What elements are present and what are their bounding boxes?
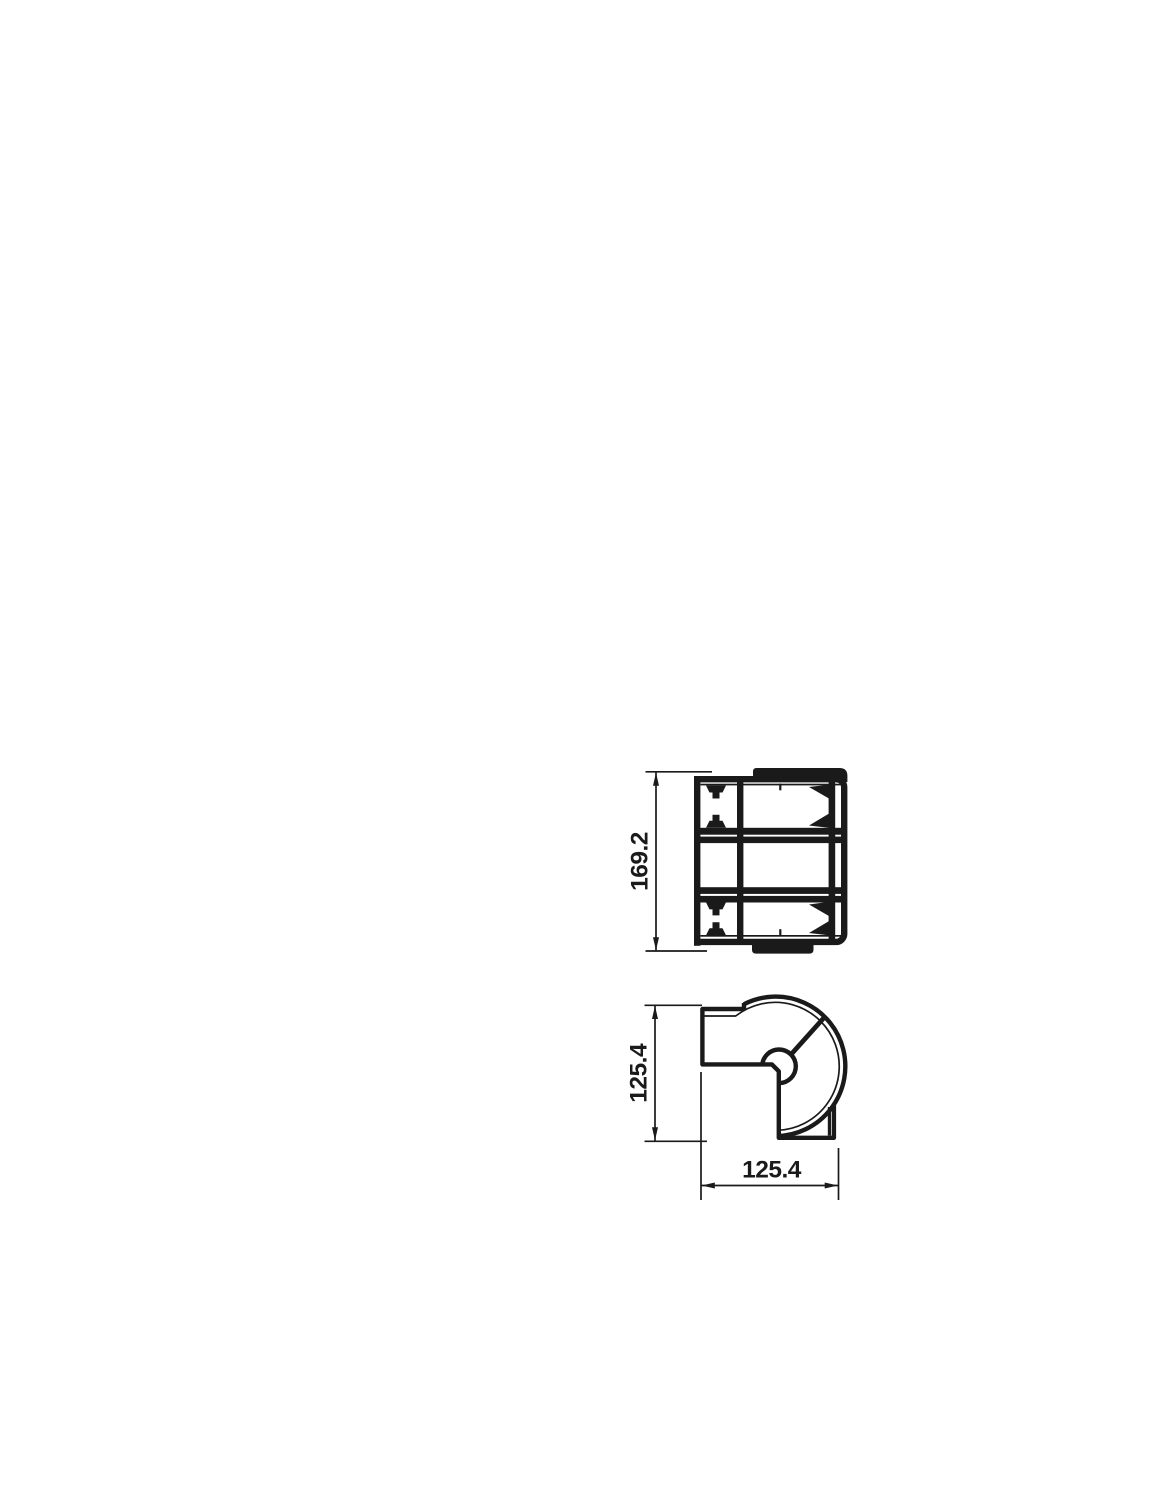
technical-drawing: 169.2 125.4	[0, 0, 1159, 1500]
dimension-label-corner-width: 125.4	[742, 1156, 802, 1183]
drawing-sheet: 169.2 125.4	[0, 0, 1159, 1500]
profile-clip-lug	[706, 815, 726, 828]
profile-rail-band	[694, 828, 844, 835]
profile-clip-lug	[706, 786, 726, 799]
profile-top-centre-tick	[779, 784, 781, 791]
profile-front-view	[694, 768, 847, 954]
corner-inner-mask	[699, 1066, 779, 1139]
arrowhead-up-icon	[652, 1006, 658, 1019]
profile-snap-wedge	[809, 901, 835, 920]
arrowhead-down-icon	[653, 937, 659, 950]
profile-snap-wedge	[809, 918, 835, 937]
profile-bottom-centre-tick	[779, 929, 781, 936]
profile-left-wall	[694, 776, 700, 946]
profile-divider-wall	[737, 777, 743, 945]
profile-rail-band	[694, 837, 844, 844]
profile-top-inner-line	[701, 784, 844, 786]
arrowhead-right-icon	[825, 1183, 838, 1189]
profile-outer-frame	[694, 779, 844, 942]
corner-partition-rib	[791, 1017, 825, 1055]
arrowhead-down-icon	[652, 1127, 658, 1140]
dimension-label-profile-height: 169.2	[627, 832, 654, 891]
profile-bottom-lip	[752, 942, 814, 954]
dimension-corner-height: 125.4	[626, 1005, 708, 1141]
profile-snap-wedge	[809, 784, 835, 802]
profile-rail-band	[694, 896, 844, 903]
profile-rail-band	[694, 887, 844, 894]
profile-snap-wedge	[809, 810, 835, 829]
arrowhead-up-icon	[653, 773, 659, 786]
profile-clip-lug	[706, 922, 726, 935]
dimension-label-corner-height: 125.4	[626, 1043, 653, 1103]
corner-plan-view	[699, 997, 845, 1139]
arrowhead-left-icon	[702, 1183, 715, 1189]
profile-bottom-inner-line	[701, 935, 844, 937]
profile-clip-lug	[706, 902, 726, 915]
